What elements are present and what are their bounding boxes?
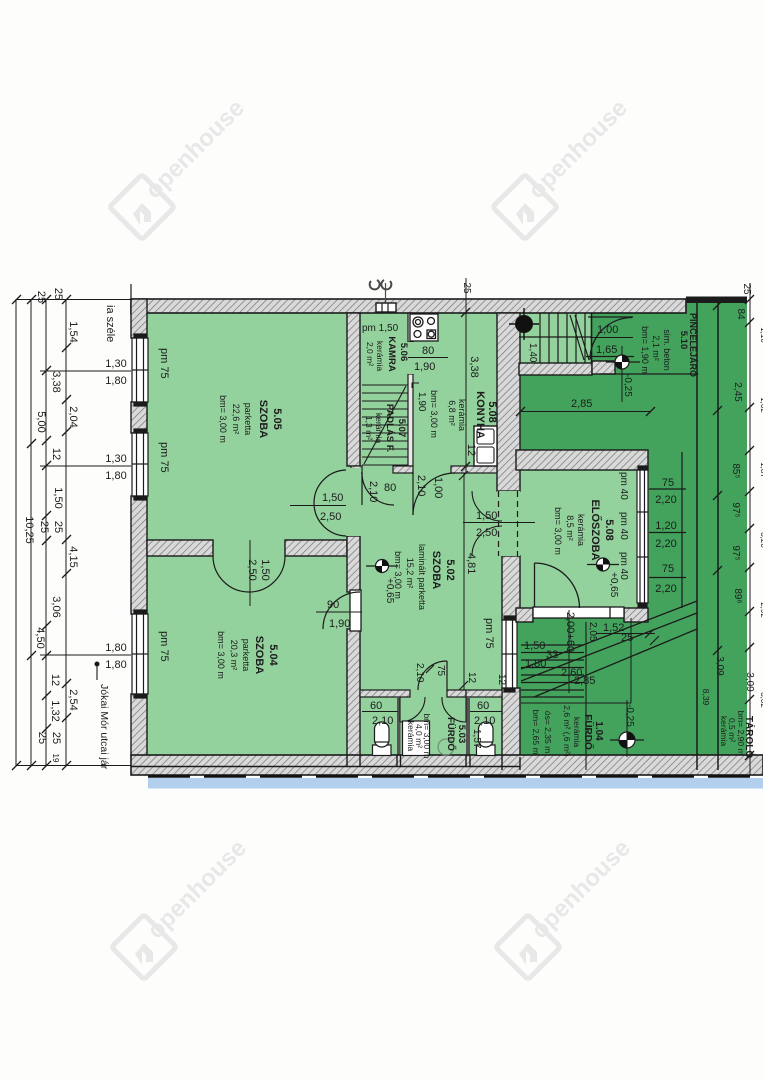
svg-text:2,0 m²: 2,0 m² [365,342,375,366]
svg-text:2,05: 2,05 [587,622,598,642]
svg-text:2,50: 2,50 [246,559,258,580]
svg-text:1,80: 1,80 [105,659,126,671]
svg-text:25: 25 [50,732,62,744]
svg-text:8,5 m²: 8,5 m² [565,515,575,541]
svg-text:1,54: 1,54 [67,321,79,342]
svg-text:pm 40: pm 40 [618,512,629,540]
svg-text:1,57: 1,57 [471,729,482,749]
svg-text:3,09: 3,09 [714,656,725,676]
svg-text:+0,65: +0,65 [608,572,619,598]
svg-text:SZOBA: SZOBA [430,551,442,590]
svg-text:5.06: 5.06 [398,343,409,362]
svg-text:2,10: 2,10 [474,715,495,727]
svg-text:1,80: 1,80 [105,642,126,654]
svg-text:2,10: 2,10 [367,481,379,502]
svg-text:12: 12 [50,448,62,460]
svg-text:KONYHA: KONYHA [474,391,486,439]
svg-text:2,10: 2,10 [414,663,425,683]
svg-text:-0,25: -0,25 [622,374,633,397]
svg-text:4,50: 4,50 [34,627,46,648]
svg-text:60: 60 [477,700,489,712]
svg-text:85⁵: 85⁵ [730,463,741,478]
svg-text:25: 25 [38,521,50,533]
svg-text:1,90: 1,90 [416,392,427,412]
svg-text:75: 75 [435,665,446,677]
svg-text:ia széle: ia széle [104,305,116,342]
svg-text:75: 75 [662,477,674,489]
svg-text:ELŐSZOBA: ELŐSZOBA [589,499,602,560]
svg-text:2,45: 2,45 [732,382,743,402]
svg-text:pm 75: pm 75 [158,442,170,473]
svg-text:33: 33 [546,649,558,661]
svg-text:5.07: 5.07 [396,419,407,438]
svg-text:1.04: 1.04 [593,721,604,741]
svg-text:+0,65: +0,65 [384,578,395,604]
svg-text:bm= 3,00 m: bm= 3,00 m [218,395,228,443]
svg-text:22,6 m²: 22,6 m² [231,404,241,435]
svg-text:5.08: 5.08 [603,519,615,540]
svg-text:1,00: 1,00 [432,477,444,498]
svg-text:4,81: 4,81 [465,553,477,574]
svg-text:3,09: 3,09 [744,672,755,692]
svg-text:1,32: 1,32 [49,700,61,721]
svg-text:5.03: 5.03 [456,725,467,744]
svg-text:1,10: 1,10 [759,327,763,343]
svg-text:5.02: 5.02 [444,559,456,580]
svg-text:6,8 m²: 6,8 m² [447,400,457,426]
svg-text:pm 75: pm 75 [158,348,170,379]
svg-text:1,50: 1,50 [259,559,271,580]
svg-text:3,02: 3,02 [759,692,763,708]
svg-text:-0,25: -0,25 [624,704,635,727]
svg-text:laminált parketta: laminált parketta [417,544,427,610]
svg-text:2,85: 2,85 [571,398,592,410]
svg-text:12: 12 [465,444,477,456]
svg-text:kerámia: kerámia [572,717,582,748]
svg-text:1,50: 1,50 [524,640,545,652]
svg-text:2,54: 2,54 [67,689,79,710]
svg-text:1,20: 1,20 [655,520,676,532]
svg-text:25: 25 [52,288,64,300]
svg-text:84: 84 [735,308,746,320]
svg-text:sim. beton: sim. beton [662,329,672,371]
svg-text:1,90: 1,90 [329,618,350,630]
svg-text:5.08: 5.08 [486,401,498,422]
svg-text:2,1 m²: 2,1 m² [651,335,661,361]
svg-text:bm= 3,00 m: bm= 3,00 m [429,390,439,438]
svg-text:1,50: 1,50 [476,510,497,522]
svg-text:90: 90 [327,599,339,611]
svg-text:10,25: 10,25 [23,516,35,544]
svg-text:2,20: 2,20 [655,538,676,550]
svg-text:1,65: 1,65 [596,344,617,356]
svg-text:2,00+60: 2,00+60 [564,612,576,652]
svg-text:1,3 m²: 1,3 m² [364,416,374,440]
svg-text:1,50: 1,50 [322,492,343,504]
svg-text:20,3 m²: 20,3 m² [229,640,239,671]
svg-text:97⁵: 97⁵ [730,502,741,517]
svg-text:1,80: 1,80 [105,470,126,482]
svg-text:1,00: 1,00 [597,324,618,336]
svg-text:1,80: 1,80 [105,375,126,387]
svg-text:3,38: 3,38 [50,371,62,392]
svg-text:1,87: 1,87 [759,462,763,478]
svg-text:SZOBA: SZOBA [253,636,265,675]
svg-text:kerámia: kerámia [374,413,384,444]
svg-text:bm= 2,65 m: bm= 2,65 m [531,709,541,754]
svg-text:SZOBA: SZOBA [257,400,269,439]
svg-text:12: 12 [496,674,507,686]
svg-text:1,40: 1,40 [527,343,538,363]
svg-text:0,5 m²: 0,5 m² [727,718,737,742]
svg-text:2,92: 2,92 [759,602,763,618]
svg-text:1,30: 1,30 [105,453,126,465]
svg-text:bm= 3,00 m: bm= 3,00 m [553,507,563,555]
svg-text:1,90: 1,90 [414,361,435,373]
svg-text:2,50: 2,50 [476,527,497,539]
svg-text:1,50: 1,50 [52,487,64,508]
svg-text:bm= 1,90 m: bm= 1,90 m [640,326,650,374]
svg-text:pm 75: pm 75 [483,618,495,649]
svg-text:75: 75 [662,563,674,575]
svg-text:25: 25 [461,282,472,294]
svg-text:PADLÁS F.: PADLÁS F. [384,404,395,452]
svg-text:5.05: 5.05 [271,408,283,429]
svg-text:60: 60 [370,700,382,712]
svg-text:4,15: 4,15 [67,546,79,567]
svg-text:2,6 m² (,6 m²): 2,6 m² (,6 m²) [562,705,572,757]
svg-text:2,04: 2,04 [67,406,79,427]
svg-text:2,20: 2,20 [655,583,676,595]
svg-text:2,10: 2,10 [415,475,427,496]
svg-text:89⁶: 89⁶ [732,588,743,603]
svg-text:FÜRDŐ: FÜRDŐ [582,714,595,750]
svg-text:5.04: 5.04 [267,644,279,666]
svg-text:2,10: 2,10 [372,715,393,727]
svg-text:25: 25 [741,283,752,295]
svg-text:97⁵: 97⁵ [730,545,741,560]
svg-text:KAMRA: KAMRA [386,336,397,371]
svg-text:kerámia: kerámia [375,341,385,372]
svg-text:pm 40: pm 40 [618,552,629,580]
svg-text:parketta: parketta [241,639,251,672]
svg-text:19: 19 [51,754,60,763]
svg-text:Jókai Mór utcai jár: Jókai Mór utcai jár [98,684,110,770]
svg-text:25: 25 [35,291,47,303]
svg-text:5,00: 5,00 [35,411,47,432]
svg-text:kerámia: kerámia [576,514,586,546]
svg-text:parketta: parketta [243,403,253,436]
svg-text:25: 25 [52,521,64,533]
svg-text:80: 80 [422,345,434,357]
svg-text:2,50: 2,50 [320,511,341,523]
svg-text:1,80: 1,80 [525,658,546,670]
svg-text:25: 25 [36,732,48,744]
svg-text:ós= 2,35 m: ós= 2,35 m [543,711,553,753]
svg-text:2,85: 2,85 [574,675,595,687]
svg-text:2,20: 2,20 [655,494,676,506]
svg-text:1,62: 1,62 [759,397,763,413]
svg-text:15,2 m²: 15,2 m² [405,558,415,589]
svg-text:pm 1,50: pm 1,50 [362,323,399,334]
svg-text:pm 75: pm 75 [158,631,170,662]
svg-text:3,20: 3,20 [759,532,763,548]
svg-text:3,06: 3,06 [50,596,62,617]
svg-text:8,39: 8,39 [701,689,711,706]
svg-text:80: 80 [384,482,396,494]
svg-text:bm= 3,00 m: bm= 3,00 m [422,713,432,758]
svg-text:bm= 3,00 m: bm= 3,00 m [216,631,226,679]
svg-text:12: 12 [466,672,477,684]
svg-text:12: 12 [49,674,61,686]
svg-text:1,30: 1,30 [105,358,126,370]
svg-text:3,38: 3,38 [468,356,480,377]
svg-text:pm 40: pm 40 [618,472,629,500]
svg-text:FÜRDŐ: FÜRDŐ [445,717,457,751]
svg-text:5.10: 5.10 [678,331,689,350]
